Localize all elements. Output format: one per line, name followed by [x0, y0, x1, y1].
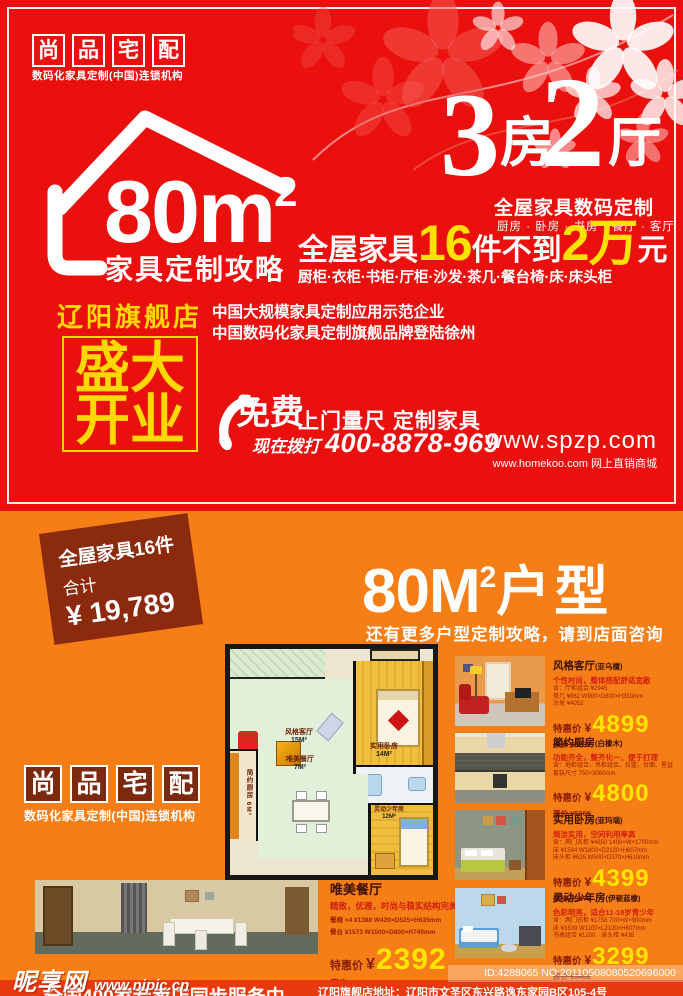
- picture-frame-shape: [496, 816, 506, 825]
- sofa-shape: [459, 684, 471, 700]
- offer-text: 全屋家具: [298, 236, 418, 266]
- chair-shape: [296, 824, 307, 833]
- image-id-text: ID:4288065 NO:20110508080520696000: [448, 965, 683, 982]
- logo-char-box: 宅: [112, 34, 145, 67]
- rug-shape: [501, 944, 517, 952]
- area-number: 80m: [104, 162, 274, 261]
- bedroom-photo: [455, 810, 545, 880]
- picture-frame-shape: [483, 816, 493, 825]
- backsplash-shape: [455, 753, 545, 770]
- special-price: 4399: [592, 867, 649, 891]
- brand-tagline: 数码化家具定制(中国)连锁机构: [32, 68, 183, 83]
- call-row: 现在拨打 400-8878-969: [252, 430, 499, 457]
- youth-room-label: 灵动少年房 12M²: [374, 807, 404, 821]
- currency-symbol: ¥: [585, 722, 592, 734]
- room-size: 7M²: [286, 764, 314, 772]
- promo-title-number: 80M: [362, 561, 480, 623]
- brand-logo: 尚 品 宅 配: [32, 34, 185, 67]
- price-offer-line: 全屋家具16件不到2万元: [298, 218, 667, 268]
- price-label: 特惠价: [553, 879, 582, 889]
- dining-room-area: 唯美餐厅 7M²: [258, 774, 368, 859]
- lamp-shade-shape: [470, 666, 482, 674]
- youth-room-area: 灵动少年房 12M²: [368, 805, 433, 875]
- phone-number: 400-8878-969: [325, 430, 499, 457]
- tv-shape: [515, 688, 531, 698]
- currency-symbol: ¥: [585, 791, 592, 803]
- toilet-shape: [366, 774, 382, 796]
- watermark-url: www.nipic.cn: [94, 977, 189, 994]
- door-shape: [285, 887, 309, 935]
- product-spec: 茶几 ¥862 W900×D800×H350mm: [553, 694, 683, 702]
- sink-shape: [408, 777, 426, 791]
- product-desc: 功能齐全，整齐化一，便于打理: [553, 752, 683, 763]
- grand-opening-box: 盛大 开业: [62, 336, 198, 452]
- room-name: 实用卧房: [370, 743, 398, 750]
- opening-line2: 开业: [75, 394, 185, 446]
- product-spec: 套装尺寸 750×3060mm: [553, 771, 683, 779]
- product-spec: 含：地柜组合、吊柜组合、拉篮、台面、星盆: [553, 763, 683, 771]
- product-desc: 简洁实用，空间利用率高: [553, 829, 683, 840]
- product-spec: 床 ¥1594 W1800×D2120×H607mm: [553, 848, 683, 856]
- product-title-row: 实用卧房(亚玛瑙): [553, 810, 683, 828]
- price-label: 特惠价: [330, 961, 363, 972]
- offer-text: 元: [637, 236, 667, 266]
- picture-frame-shape: [205, 892, 214, 900]
- desk-shape: [519, 926, 541, 946]
- logo-char-box: 配: [152, 34, 185, 67]
- call-prefix: 现在拨打: [252, 438, 320, 455]
- chair-shape: [316, 824, 327, 833]
- area-caption: 家具定制攻略: [105, 248, 285, 288]
- dining-room-label: 唯美餐厅 7M²: [286, 756, 314, 773]
- floor-lamp-shape: [475, 672, 477, 700]
- product-variant: (亚乌檀): [595, 662, 623, 671]
- store-address: 辽阳旗舰店地址：辽阳市文圣区东兴路逸东家园B区105-4号: [318, 984, 607, 996]
- master-bedroom-area: 实用卧房 14M²: [353, 661, 433, 767]
- promo-title-superscript: 2: [480, 563, 497, 593]
- chair-shape: [163, 922, 175, 946]
- offer-number-16: 16: [418, 218, 472, 268]
- picture-frame-shape: [481, 894, 495, 906]
- living-room-label: 风格客厅 15M²: [285, 729, 313, 746]
- area-superscript: 2: [274, 168, 297, 215]
- youth-room-photo: [455, 888, 545, 958]
- pillow-shape: [463, 926, 473, 932]
- opening-line1: 盛大: [75, 342, 185, 394]
- special-price: 2392: [376, 945, 447, 975]
- floor-shape: [455, 790, 545, 803]
- wardrobe-shape: [525, 810, 545, 880]
- living-room-photo: [455, 656, 545, 726]
- product-title: 灵动少年房: [553, 892, 606, 904]
- product-title: 简约厨房: [553, 737, 595, 749]
- product-desc: 个性时尚，整体搭配舒适宽敞: [553, 675, 683, 686]
- credential-line2: 中国数码化家具定制旗舰品牌登陆徐州: [212, 321, 476, 343]
- logo-char-box: 品: [72, 34, 105, 67]
- special-price: 4800: [592, 782, 649, 806]
- blinds-shape: [121, 883, 147, 933]
- logo-char-box: 尚: [24, 765, 62, 803]
- kitchen-counter-shape: [230, 753, 239, 839]
- total-price-ribbon: 全屋家具16件 合计 ¥ 19,789: [39, 513, 203, 645]
- product-info: 简约厨房(白橡木) 功能齐全，整齐化一，便于打理 含：地柜组合、吊柜组合、拉篮、…: [553, 733, 683, 819]
- product-card-kitchen: 简约厨房(白橡木) 功能齐全，整齐化一，便于打理 含：地柜组合、吊柜组合、拉篮、…: [455, 733, 683, 809]
- pillow-shape: [401, 819, 427, 829]
- room-name: 灵动少年房: [374, 807, 404, 813]
- product-spec: 床头柜 ¥635 W500×D370×H610mm: [553, 855, 683, 863]
- product-spec: 床 ¥1639 W1100×L2120×H607mm: [553, 926, 683, 934]
- price-label: 特惠价: [553, 794, 582, 804]
- price-row: 特惠价 ¥ 4399: [553, 867, 683, 891]
- furniture-list: 厨柜·衣柜·书柜·厅柜·沙发·茶几·餐台椅·床·床头柜: [298, 266, 612, 287]
- dining-room-photo: [35, 880, 318, 954]
- product-title-row: 风格客厅(亚乌檀): [553, 656, 683, 674]
- nightstand-shape: [509, 860, 521, 870]
- poster-root: 尚 品 宅 配 数码化家具定制(中国)连锁机构 80m2 家具定制攻略 3 房 …: [0, 0, 683, 996]
- promo-section: 全屋家具16件 合计 ¥ 19,789 80M 2 户型 还有更多户型定制攻略，…: [0, 511, 683, 980]
- logo-char: 配: [168, 772, 193, 797]
- logo-char-box: 品: [70, 765, 108, 803]
- logo-char: 品: [78, 40, 99, 61]
- logo-char-box: 尚: [32, 34, 65, 67]
- product-spec: 沙发 ¥4052: [553, 701, 683, 709]
- product-spec: 含：两门衣柜 ¥1758 700×W×900mm: [553, 918, 683, 926]
- product-variant: (亚玛瑙): [595, 816, 623, 825]
- room-name: 唯美餐厅: [286, 756, 314, 763]
- currency-symbol: ¥: [585, 954, 592, 966]
- offer-text: 件不到: [472, 236, 562, 266]
- product-title-row: 灵动少年房(伊顿蓝橡): [553, 888, 683, 906]
- kitchen-area: 简约厨房 6M²: [230, 749, 258, 841]
- bedcover-shape: [461, 860, 505, 872]
- product-card-bedroom: 实用卧房(亚玛瑙) 简洁实用，空间利用率高 含：两门衣柜 ¥4650 1400×…: [455, 810, 683, 886]
- logo-char: 尚: [30, 772, 55, 797]
- balcony-area: [230, 649, 325, 679]
- rooms-char-ting: 厅: [608, 116, 662, 170]
- logo-char: 宅: [122, 772, 147, 797]
- product-card-youth: 灵动少年房(伊顿蓝橡) 色彩明亮，适合11-18岁青少年 含：两门衣柜 ¥175…: [455, 888, 683, 964]
- rug-shape: [316, 713, 344, 742]
- logo-char: 宅: [118, 40, 139, 61]
- product-title: 实用卧房: [553, 814, 595, 826]
- bed-shape: [376, 689, 420, 747]
- website-sub: www.homekoo.com 网上直销商城: [493, 455, 657, 471]
- product-card-living: 风格客厅(亚乌檀) 个性时尚，整体搭配舒适宽敞 含：厅柜组合 ¥2945 茶几 …: [455, 656, 683, 732]
- room-size: 12M²: [374, 814, 404, 821]
- watermark-logo: 昵享网: [12, 962, 87, 996]
- promo-subtitle: 还有更多户型定制攻略，请到店面咨询: [366, 621, 664, 645]
- brand-logo-secondary: 尚 品 宅 配: [24, 765, 200, 803]
- website-main: www.spzp.com: [485, 427, 657, 455]
- product-title: 风格客厅: [553, 660, 595, 672]
- room-size: 15M²: [285, 737, 313, 745]
- kitchen-photo: [455, 733, 545, 803]
- bedroom-balcony-area: [370, 649, 420, 661]
- chair-shape: [296, 791, 307, 800]
- hero-section: 尚 品 宅 配 数码化家具定制(中国)连锁机构 80m2 家具定制攻略 3 房 …: [0, 0, 683, 511]
- picture-frame-shape: [509, 816, 519, 825]
- door-shape: [43, 886, 73, 946]
- pillow-shape: [465, 850, 477, 856]
- range-hood-shape: [487, 733, 505, 748]
- kitchen-label: 简约厨房 6M²: [243, 769, 253, 816]
- pillow-shape: [481, 850, 493, 856]
- currency-symbol: ¥: [585, 876, 592, 888]
- area-headline: 80m2: [104, 168, 298, 256]
- picture-frame-shape: [497, 896, 506, 904]
- store-name: 辽阳旗舰店: [57, 297, 202, 334]
- product-variant: (白橡木): [595, 739, 623, 748]
- logo-char: 尚: [38, 40, 59, 61]
- product-title-row: 简约厨房(白橡木): [553, 733, 683, 751]
- rooms-digit-3: 3: [440, 75, 500, 195]
- pillow-shape: [378, 691, 418, 700]
- product-desc: 色彩明亮，适合11-18岁青少年: [553, 907, 683, 918]
- watermark: 昵享网 www.nipic.cn: [12, 962, 189, 996]
- logo-char-box: 配: [162, 765, 200, 803]
- dining-table-shape: [292, 800, 330, 822]
- promo-title-suffix: 户型: [496, 565, 612, 619]
- wardrobe-shape: [422, 661, 433, 765]
- floor-plan: 风格客厅 15M² 简约厨房 6M² 实用卧房 14M²: [225, 644, 438, 880]
- room-size: 14M²: [370, 751, 398, 759]
- offer-number-2wan: 2万: [562, 218, 638, 268]
- bedcover-diamond-shape: [388, 710, 409, 731]
- bedroom-label: 实用卧房 14M²: [370, 743, 398, 760]
- brand-tagline-secondary: 数码化家具定制(中国)连锁机构: [24, 807, 196, 824]
- desk-shape: [375, 853, 395, 869]
- price-row: 特惠价 ¥ 4800: [553, 782, 683, 806]
- chair-shape: [195, 930, 207, 950]
- logo-char: 配: [158, 40, 179, 61]
- oven-shape: [493, 774, 507, 788]
- promo-title: 80M 2 户型: [362, 561, 612, 623]
- youth-bed-shape: [399, 817, 429, 867]
- product-spec: 含：厅柜组合 ¥2945: [553, 686, 683, 694]
- product-spec: 书桌组合 ¥1200 床头柜 ¥435: [553, 933, 683, 941]
- room-name: 风格客厅: [285, 729, 313, 736]
- picture-frame-shape: [185, 890, 199, 902]
- logo-char-box: 宅: [116, 765, 154, 803]
- credential-line1: 中国大规模家具定制应用示范企业: [212, 300, 445, 322]
- product-variant: (伊顿蓝橡): [606, 894, 641, 903]
- currency-symbol: ¥: [366, 957, 375, 973]
- rooms-digit-2: 2: [540, 58, 605, 188]
- chair-shape: [235, 922, 247, 946]
- product-spec: 含：两门衣柜 ¥4650 1400×W×1700mm: [553, 840, 683, 848]
- chair-shape: [316, 791, 327, 800]
- logo-char: 品: [76, 772, 101, 797]
- cta-free: 免费: [236, 396, 304, 430]
